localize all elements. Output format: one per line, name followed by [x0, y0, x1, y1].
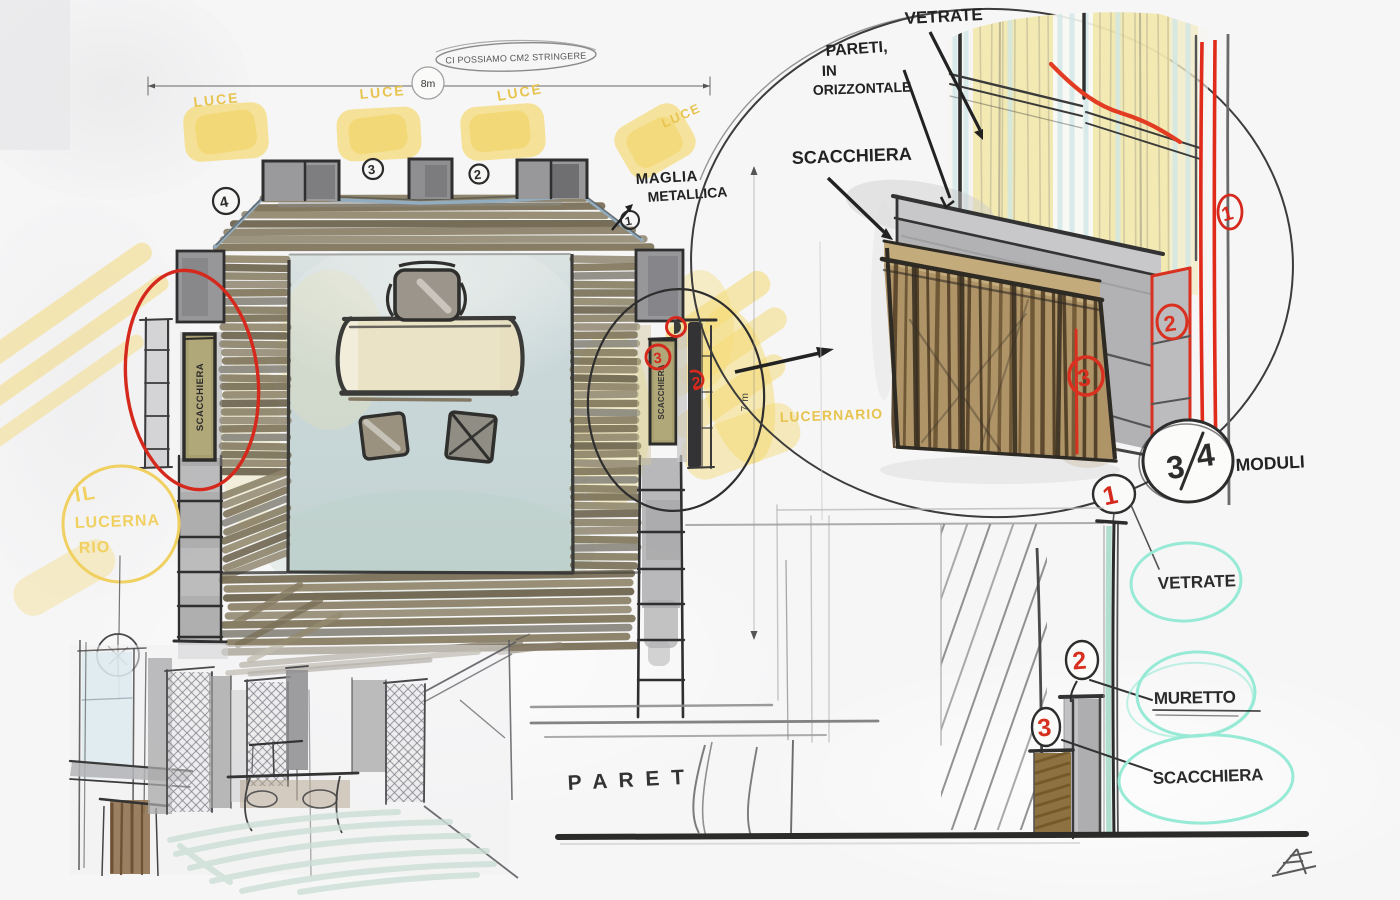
svg-text:VETRATE: VETRATE [1157, 571, 1236, 593]
svg-text:8m: 8m [421, 78, 436, 90]
svg-text:SCACCHIERA: SCACCHIERA [1152, 765, 1263, 788]
svg-text:MURETTO: MURETTO [1154, 688, 1236, 708]
svg-text:3: 3 [1036, 713, 1052, 742]
svg-text:SCACCHIERA: SCACCHIERA [791, 144, 912, 168]
svg-text:2: 2 [1071, 646, 1087, 675]
svg-text:RIO: RIO [79, 539, 111, 557]
svg-text:2: 2 [473, 167, 482, 183]
svg-text:MAGLIA: MAGLIA [635, 168, 698, 188]
svg-text:3: 3 [653, 350, 663, 368]
svg-text:SCACCHIERA: SCACCHIERA [195, 363, 206, 431]
svg-text:MODULI: MODULI [1235, 451, 1305, 475]
svg-text:SCACCHIERA: SCACCHIERA [657, 364, 666, 419]
svg-text:LUCERNA: LUCERNA [75, 512, 161, 532]
svg-text:3: 3 [367, 162, 376, 178]
svg-text:IN: IN [822, 62, 838, 80]
svg-text:IL: IL [73, 481, 98, 506]
